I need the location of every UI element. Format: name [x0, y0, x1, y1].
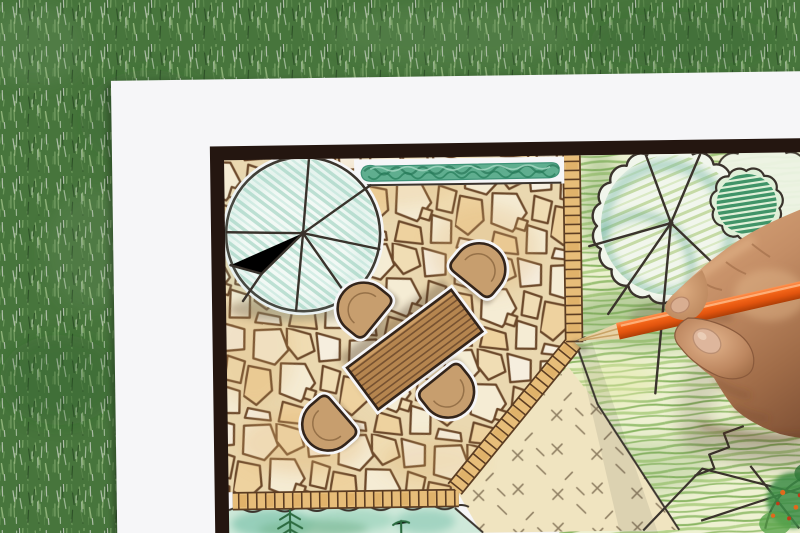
hedge-strip [354, 157, 564, 187]
photo-scene: Hand drawing a garden landscape architec… [0, 0, 800, 533]
